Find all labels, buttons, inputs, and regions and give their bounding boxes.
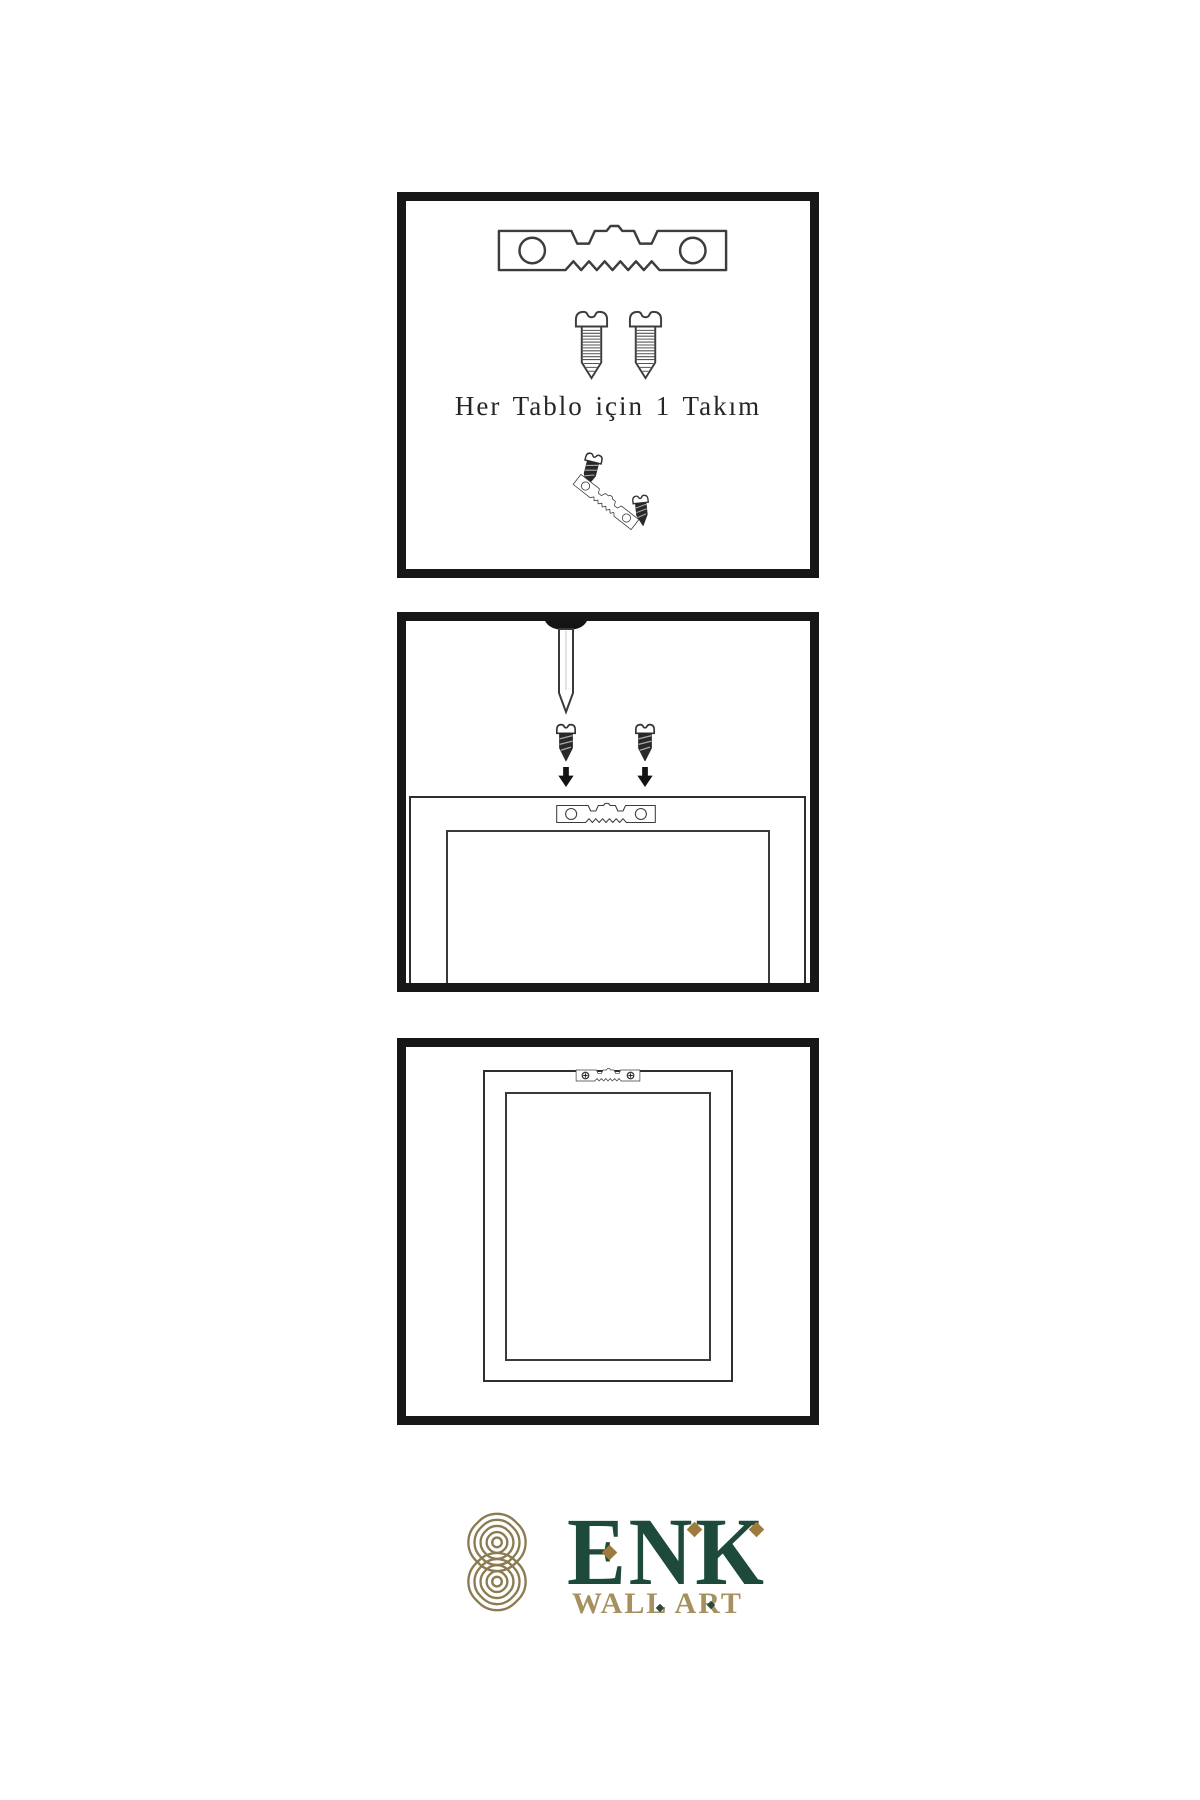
down-arrow-icon xyxy=(558,767,574,788)
brand-name: ENK xyxy=(567,1504,767,1600)
screw-dark-icon xyxy=(630,492,653,529)
sawtooth-hanger-screwed-icon xyxy=(575,1067,641,1084)
screw-icon xyxy=(573,307,610,381)
instruction-step-2-panel xyxy=(397,612,819,992)
kit-caption: Her Tablo için 1 Takım xyxy=(406,391,810,422)
screw-dark-icon xyxy=(634,721,656,764)
down-arrow-icon xyxy=(637,767,653,788)
sawtooth-hanger-icon xyxy=(495,223,730,278)
nail-icon xyxy=(544,618,588,718)
knot-logo-icon xyxy=(433,1493,561,1631)
page-root: Her Tablo için 1 Takım ENK WALL ART xyxy=(0,0,1200,1800)
hung-frame-inner xyxy=(505,1092,711,1361)
brand-subtitle: WALL ART xyxy=(572,1589,743,1619)
screw-dark-icon xyxy=(555,721,577,764)
sawtooth-hanger-icon xyxy=(555,802,657,826)
frame-back-inner xyxy=(446,830,770,992)
instruction-step-1-panel: Her Tablo için 1 Takım xyxy=(397,192,819,578)
screw-icon xyxy=(627,307,664,381)
instruction-step-3-panel xyxy=(397,1038,819,1425)
